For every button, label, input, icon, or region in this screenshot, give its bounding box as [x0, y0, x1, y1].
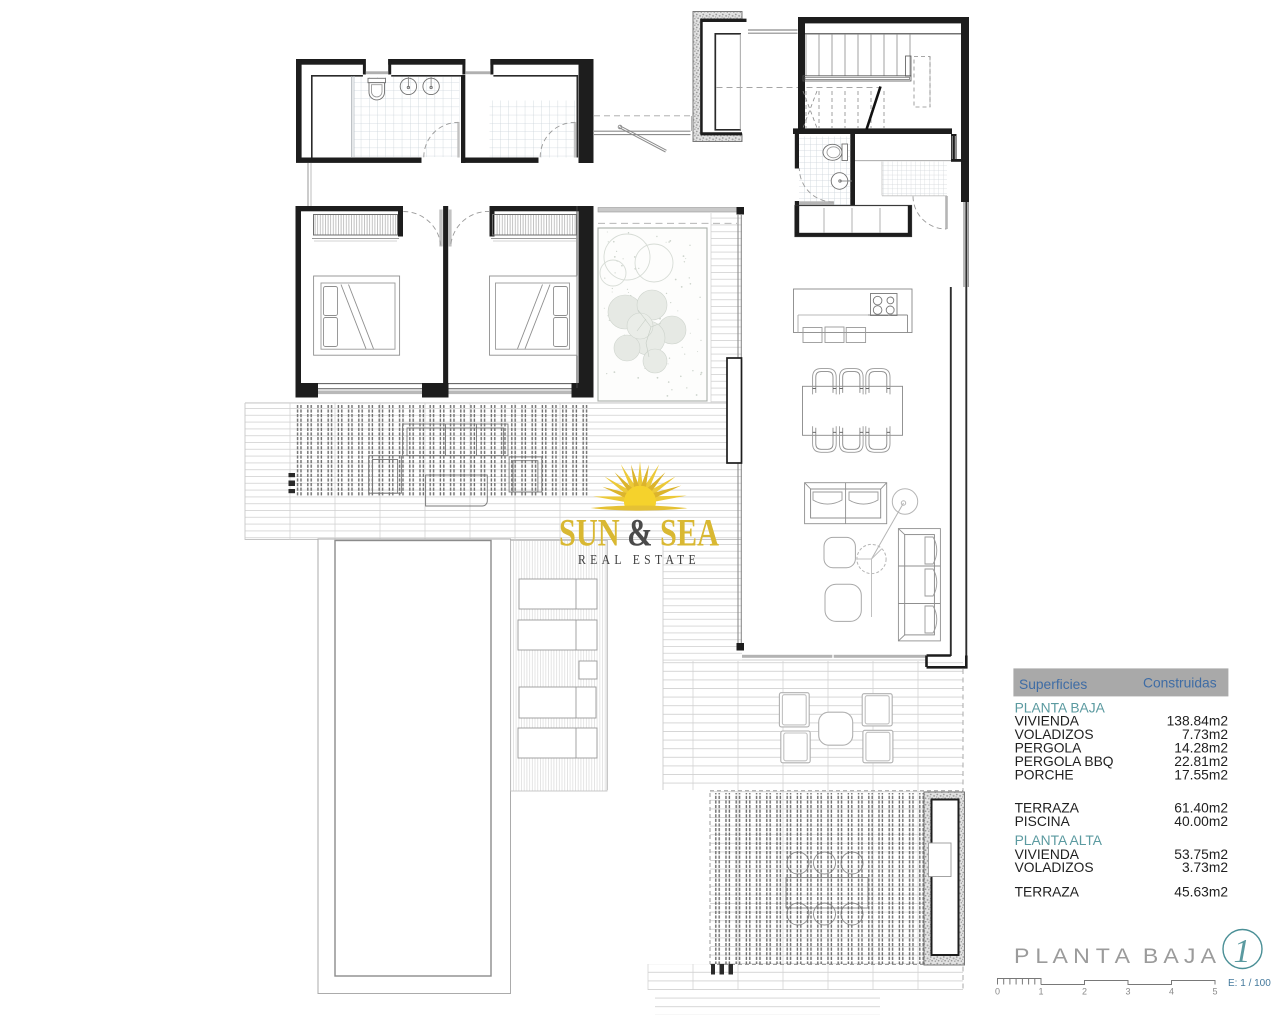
svg-text:3.73m2: 3.73m2 [1182, 860, 1228, 875]
svg-text:5: 5 [1212, 987, 1217, 997]
svg-text:40.00m2: 40.00m2 [1174, 814, 1228, 829]
svg-text:1: 1 [1038, 987, 1043, 997]
svg-text:TERRAZA: TERRAZA [1015, 885, 1080, 900]
svg-text:3: 3 [1125, 987, 1130, 997]
svg-text:P L A N T A B A J A: P L A N T A B A J A [1014, 944, 1217, 968]
svg-text:REAL ESTATE: REAL ESTATE [578, 552, 700, 567]
svg-text:45.63m2: 45.63m2 [1174, 885, 1228, 900]
svg-text:SUN & SEA: SUN & SEA [559, 512, 719, 555]
svg-text:4: 4 [1169, 987, 1174, 997]
svg-text:PISCINA: PISCINA [1015, 814, 1071, 829]
svg-text:Superficies: Superficies [1019, 677, 1087, 692]
svg-text:Construidas: Construidas [1143, 676, 1217, 691]
svg-text:17.55m2: 17.55m2 [1174, 768, 1228, 783]
svg-text:PORCHE: PORCHE [1015, 768, 1074, 783]
svg-text:1: 1 [1234, 933, 1251, 970]
svg-text:2: 2 [1082, 987, 1087, 997]
svg-text:0: 0 [995, 987, 1000, 997]
svg-text:E: 1 / 100: E: 1 / 100 [1228, 978, 1271, 989]
svg-text:PLANTA ALTA: PLANTA ALTA [1015, 833, 1103, 848]
svg-text:VOLADIZOS: VOLADIZOS [1015, 860, 1094, 875]
